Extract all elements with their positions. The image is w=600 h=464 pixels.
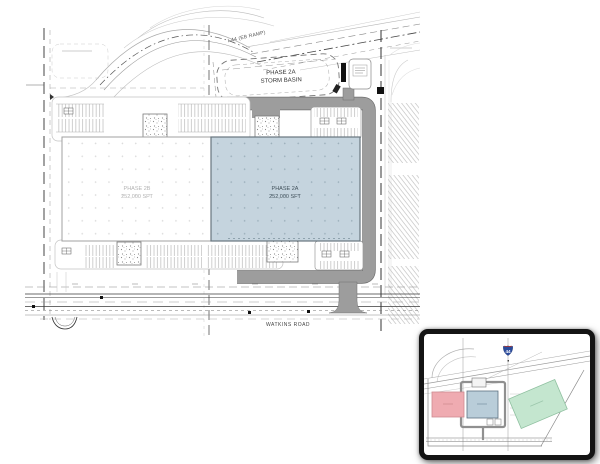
landscape-area [255, 116, 279, 138]
car-icon [340, 251, 349, 257]
inset-future-building [509, 380, 568, 429]
site-plan-page: I-44 (EB RAMP) PHASE 2A STORM BASIN [0, 0, 600, 464]
landscape-area [143, 114, 167, 137]
inset-phase-2b-building [432, 392, 464, 417]
landscape-area [267, 241, 298, 262]
phase-2b-building: PHASE 2B 252,000 SFT [62, 137, 211, 241]
phase-2a-name: PHASE 2A [272, 186, 299, 192]
car-icon [337, 118, 346, 124]
svg-text:PHASE 2A: PHASE 2A [266, 69, 296, 76]
phase-2b-area: 252,000 SFT [121, 194, 153, 200]
landscape-area [117, 242, 141, 265]
car-icon [64, 108, 73, 114]
svg-text:STORM BASIN: STORM BASIN [260, 77, 301, 84]
car-icon [320, 118, 329, 124]
car-icon [62, 248, 71, 254]
inset-map-drawing: 44 [424, 334, 590, 455]
i44-ramp-label: I-44 (EB RAMP) [227, 30, 266, 45]
watkins-road [25, 284, 420, 329]
storm-basin-label: PHASE 2A STORM BASIN [260, 69, 302, 84]
phase-2b-name: PHASE 2B [124, 186, 151, 192]
shield-number: 44 [505, 349, 511, 354]
inset-overview-map: 44 [419, 329, 595, 460]
phase-2a-building: PHASE 2A 252,000 SFT [211, 137, 360, 241]
east-parking [388, 60, 419, 324]
phase-2a-area: 252,000 SFT [269, 194, 301, 200]
watkins-road-label: WATKINS ROAD [266, 322, 310, 328]
car-icon [322, 251, 331, 257]
inset-phase-2a-building [467, 391, 498, 418]
